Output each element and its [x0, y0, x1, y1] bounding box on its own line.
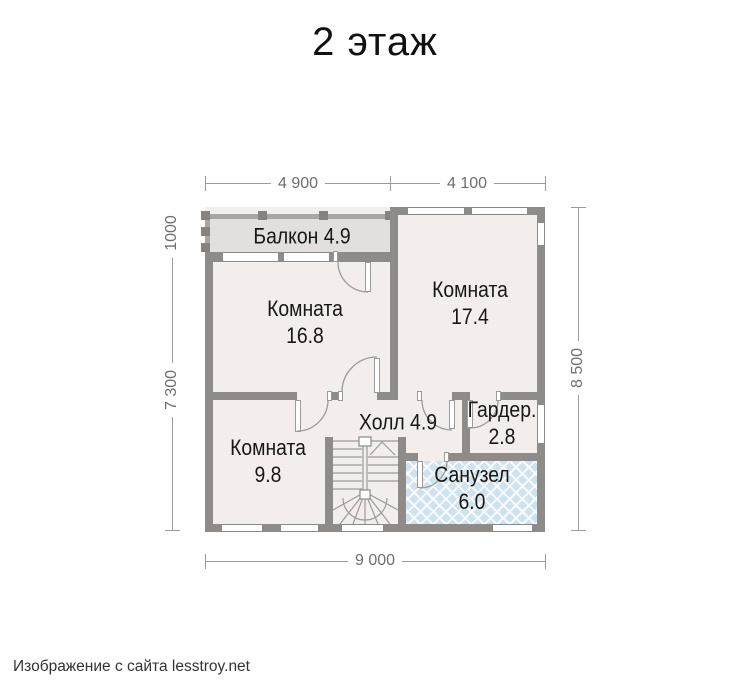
door-leaf-room-17-4 — [449, 400, 455, 429]
room-name: Санузел — [434, 461, 509, 488]
room-name: Комната — [432, 276, 508, 303]
room-area: 6.0 — [434, 488, 509, 515]
room-name: Комната — [230, 434, 306, 461]
dim-tick — [165, 530, 180, 531]
door-jamb — [417, 391, 422, 401]
room-name: Холл — [359, 410, 405, 435]
dim-tick — [205, 176, 206, 191]
dim-label-bottom-width: 9 000 — [348, 552, 402, 570]
room-area: 9.8 — [230, 461, 306, 488]
balcony-post — [319, 211, 328, 220]
room-label-16-8: Комната 16.8 — [267, 295, 343, 349]
dim-tick — [390, 176, 391, 191]
wall-right — [537, 207, 545, 532]
balcony-post — [258, 211, 267, 220]
room-area: 2.8 — [468, 423, 537, 450]
door-leaf-room-9-8 — [295, 400, 301, 432]
dim-label-left-height: 7 300 — [163, 363, 181, 417]
window — [341, 524, 384, 532]
floor-plan-page: 2 этаж — [0, 0, 750, 688]
wall-stairs-left — [325, 437, 333, 524]
watermark: Изображение с сайта lesstroy.net — [13, 658, 250, 676]
wall-mid — [377, 392, 398, 400]
dim-label-top-left: 4 900 — [271, 175, 325, 193]
room-area: 17.4 — [432, 303, 508, 330]
dim-tick — [545, 176, 546, 191]
room-area: 16.8 — [267, 322, 343, 349]
wall-mid — [205, 392, 297, 400]
balcony-post — [201, 227, 210, 236]
window — [492, 524, 533, 532]
room-label-wardrobe: Гардер. 2.8 — [468, 396, 537, 450]
window — [283, 252, 330, 262]
dim-label-right-height: 8 500 — [569, 341, 587, 395]
room-label-balcony: Балкон 4.9 — [253, 223, 350, 250]
room-label-9-8: Комната 9.8 — [230, 434, 306, 488]
room-label-bathroom: Санузел 6.0 — [434, 461, 509, 515]
window — [471, 207, 528, 215]
dim-tick — [205, 554, 206, 569]
door-leaf-room-16-8 — [374, 358, 380, 393]
dim-tick — [545, 554, 546, 569]
wall-divider — [390, 215, 398, 400]
window — [221, 524, 263, 532]
balcony-post — [201, 243, 210, 252]
door-jamb — [327, 391, 332, 401]
wall-bathroom-top — [445, 453, 537, 461]
window — [537, 404, 545, 444]
balcony-post — [201, 211, 210, 220]
window — [280, 524, 319, 532]
door-leaf-bathroom — [417, 461, 423, 488]
room-label-17-4: Комната 17.4 — [432, 276, 508, 330]
room-name: Комната — [267, 295, 343, 322]
door-jamb — [338, 391, 343, 401]
balcony-parapet-top — [205, 214, 390, 219]
door-leaf-balcony — [365, 262, 371, 292]
dim-label-top-right: 4 100 — [440, 175, 494, 193]
room-name: Балкон — [253, 224, 318, 249]
dim-label-balcony-depth: 1000 — [163, 208, 181, 258]
room-area: 4.9 — [410, 410, 437, 435]
door-jamb — [333, 251, 338, 262]
room-name: Гардер. — [468, 396, 537, 423]
room-area: 4.9 — [324, 224, 351, 249]
window — [407, 207, 465, 215]
dim-tick — [571, 530, 586, 531]
dim-tick — [571, 207, 586, 208]
window — [222, 252, 279, 262]
wall-stairs-right — [398, 437, 406, 524]
room-label-hall: Холл 4.9 — [359, 409, 437, 436]
page-title: 2 этаж — [312, 20, 438, 65]
window — [537, 222, 545, 246]
